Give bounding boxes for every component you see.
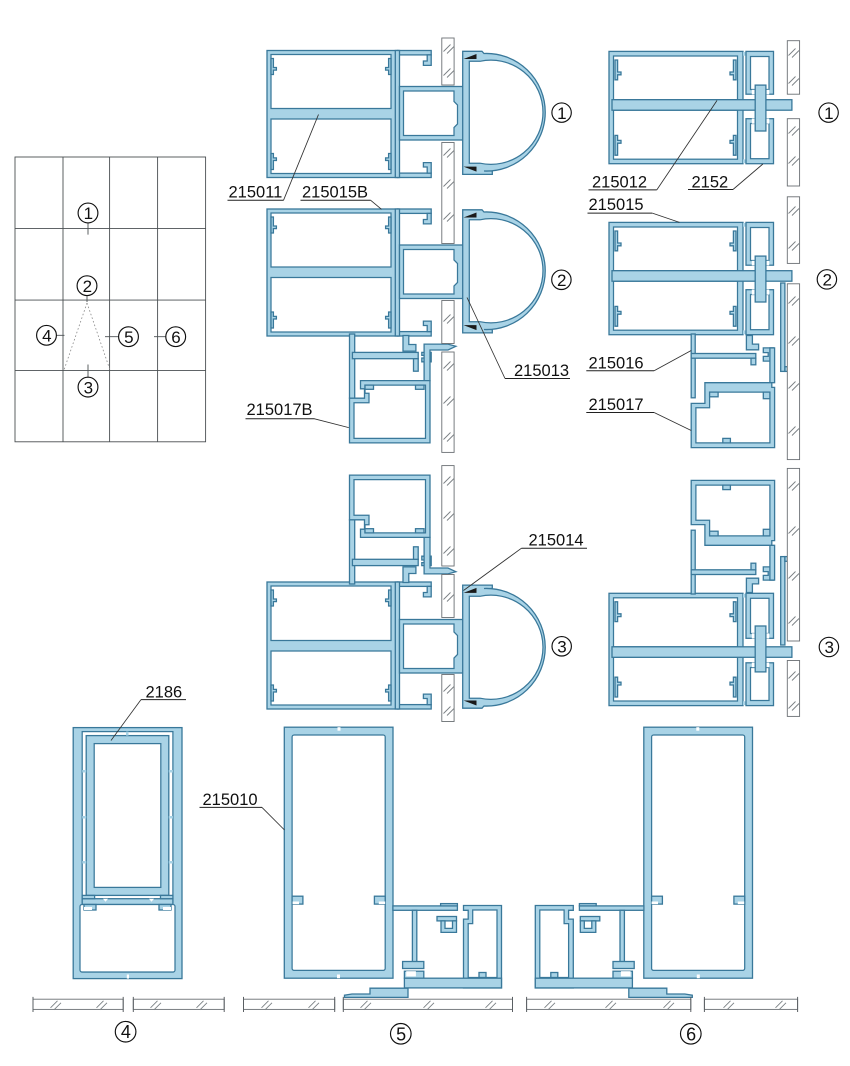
svg-text:215015B: 215015B [302,184,368,202]
svg-text:6: 6 [686,1024,696,1044]
svg-text:6: 6 [171,328,180,347]
svg-text:4: 4 [42,327,51,346]
svg-text:215011: 215011 [229,184,283,202]
svg-text:215017: 215017 [589,396,644,414]
svg-text:2: 2 [822,271,831,290]
svg-text:1: 1 [557,104,566,123]
svg-text:215010: 215010 [203,791,258,809]
svg-text:5: 5 [396,1024,406,1044]
svg-text:3: 3 [557,638,566,657]
svg-text:3: 3 [824,638,833,657]
svg-text:215012: 215012 [592,173,647,191]
svg-text:215014: 215014 [529,532,584,550]
svg-text:215017B: 215017B [247,401,313,419]
svg-text:4: 4 [121,1022,131,1042]
svg-text:215015: 215015 [589,196,644,214]
svg-text:2: 2 [83,277,92,296]
svg-text:1: 1 [824,104,833,123]
svg-text:2152: 2152 [692,174,729,192]
svg-text:2: 2 [557,271,566,290]
svg-text:5: 5 [124,328,133,347]
svg-text:215016: 215016 [589,355,644,373]
svg-text:1: 1 [84,204,93,223]
svg-text:3: 3 [84,378,93,397]
svg-text:2186: 2186 [146,684,183,702]
svg-text:215013: 215013 [514,362,569,380]
